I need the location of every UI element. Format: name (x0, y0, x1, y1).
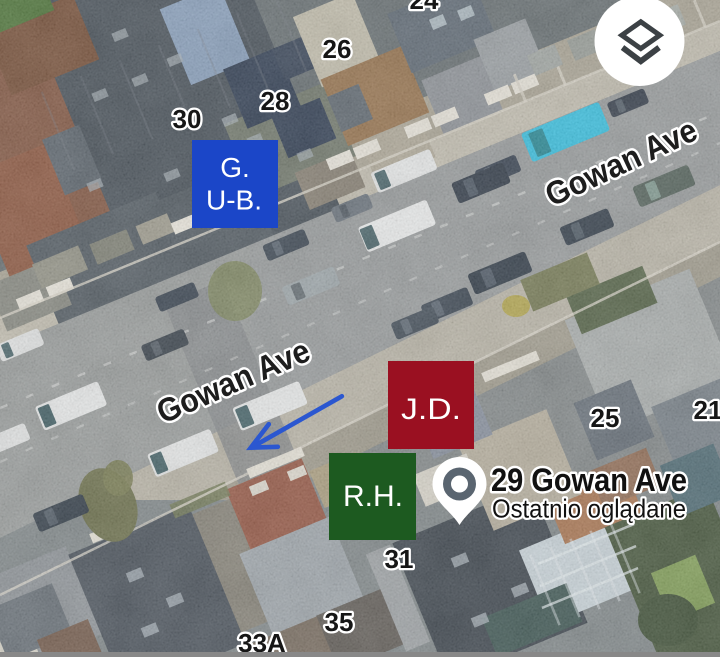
svg-text:26: 26 (323, 34, 352, 64)
svg-text:Ostatnio oglądane: Ostatnio oglądane (492, 494, 686, 524)
svg-text:25: 25 (591, 403, 620, 433)
svg-text:33A: 33A (238, 628, 286, 652)
svg-text:35: 35 (325, 607, 354, 637)
svg-text:U-B.: U-B. (206, 185, 262, 216)
svg-text:28: 28 (261, 86, 290, 116)
svg-text:J.D.: J.D. (401, 393, 461, 426)
svg-text:31: 31 (385, 544, 414, 574)
svg-text:R.H.: R.H. (343, 480, 403, 513)
svg-text:G.: G. (220, 152, 250, 183)
svg-text:21: 21 (694, 395, 720, 425)
svg-text:30: 30 (173, 104, 202, 134)
svg-text:24: 24 (410, 0, 439, 15)
